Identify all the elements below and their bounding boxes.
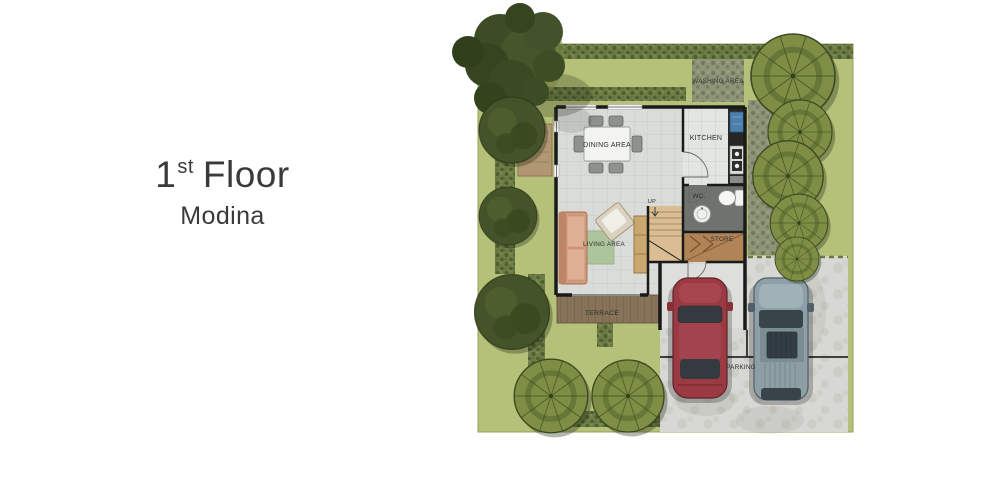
tree-shadow-parking-3 bbox=[736, 406, 804, 434]
suv-car bbox=[748, 278, 814, 405]
label-store: STORE bbox=[711, 236, 734, 243]
label-parking: PARKING bbox=[726, 364, 756, 371]
car-mirror bbox=[748, 303, 755, 312]
car-mirror bbox=[667, 302, 674, 311]
label-dining-area: DINING AREA bbox=[583, 142, 631, 149]
floor-plan-illustration: WASHING AREA KITCHEN DINING AREA WC. STO… bbox=[0, 0, 1000, 500]
windshield bbox=[759, 310, 803, 328]
rear-window bbox=[761, 388, 801, 400]
label-living-area: LIVING AREA bbox=[583, 241, 625, 248]
wc-sink bbox=[694, 206, 711, 223]
label-kitchen: KITCHEN bbox=[690, 135, 722, 142]
rear-window bbox=[680, 359, 720, 379]
sunroof bbox=[767, 332, 797, 358]
kitchen-counter bbox=[728, 108, 745, 184]
terrace-deck bbox=[557, 295, 660, 323]
car-mirror bbox=[807, 303, 814, 312]
red-car bbox=[667, 278, 733, 403]
cabinet bbox=[634, 216, 648, 273]
label-up: UP bbox=[648, 199, 656, 205]
stove bbox=[730, 146, 744, 174]
car-roof bbox=[679, 323, 721, 359]
toilet bbox=[719, 190, 745, 206]
label-terrace: TERRACE bbox=[585, 310, 619, 317]
windshield bbox=[678, 306, 722, 323]
page: 1stFloor Modina bbox=[0, 0, 1000, 500]
sofa bbox=[559, 212, 587, 284]
label-wc: WC. bbox=[693, 193, 706, 200]
stairs bbox=[648, 206, 683, 262]
kitchen-sink bbox=[730, 112, 744, 132]
suv-roof-rear bbox=[760, 362, 804, 388]
car-mirror bbox=[726, 302, 733, 311]
label-washing-area: WASHING AREA bbox=[692, 78, 744, 85]
